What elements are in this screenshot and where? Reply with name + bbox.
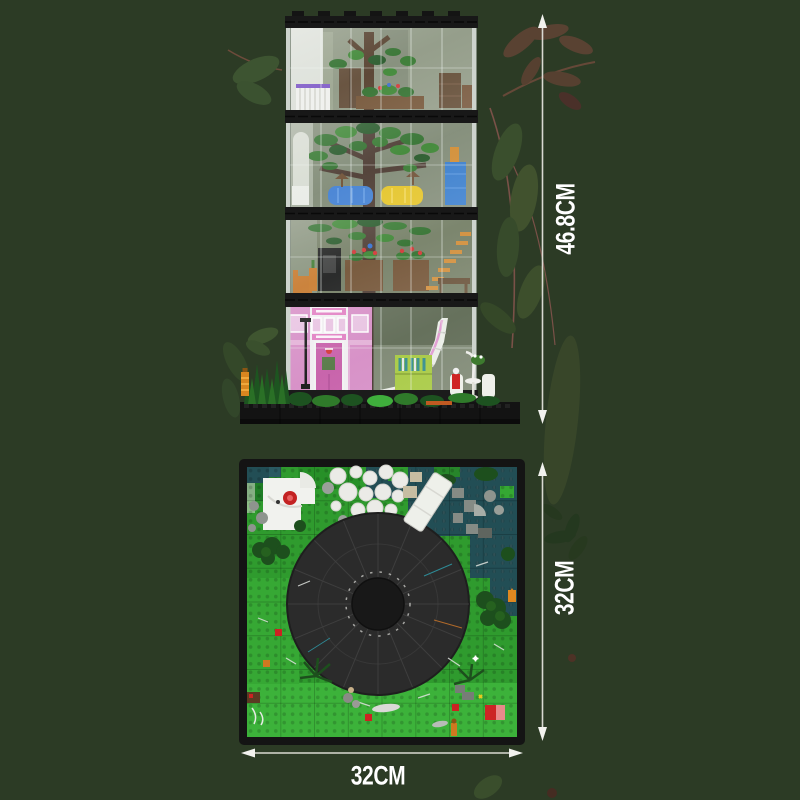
arrow-right-icon bbox=[509, 749, 523, 758]
leaf-decoration-bottom bbox=[470, 770, 507, 800]
berry-decoration bbox=[547, 788, 557, 798]
baseplate-top-view-image bbox=[238, 458, 526, 746]
arrow-left-icon bbox=[241, 749, 255, 758]
page-background: 46.8CM 32CM 32CM bbox=[0, 0, 800, 800]
arrow-up-icon bbox=[538, 462, 547, 476]
baseplate-width-dimension-line bbox=[237, 745, 527, 761]
tower-height-label: 46.8CM bbox=[553, 173, 580, 265]
berry-decoration bbox=[568, 654, 576, 662]
tower-front-view-image bbox=[230, 0, 540, 440]
baseplate-width-label: 32CM bbox=[343, 763, 413, 790]
arrow-down-icon bbox=[538, 410, 547, 424]
tower-height-dimension-line bbox=[535, 12, 551, 426]
baseplate-depth-label: 32CM bbox=[552, 553, 579, 623]
arrow-down-icon bbox=[538, 727, 547, 741]
round-roof-top bbox=[287, 513, 469, 695]
arrow-up-icon bbox=[538, 14, 547, 28]
